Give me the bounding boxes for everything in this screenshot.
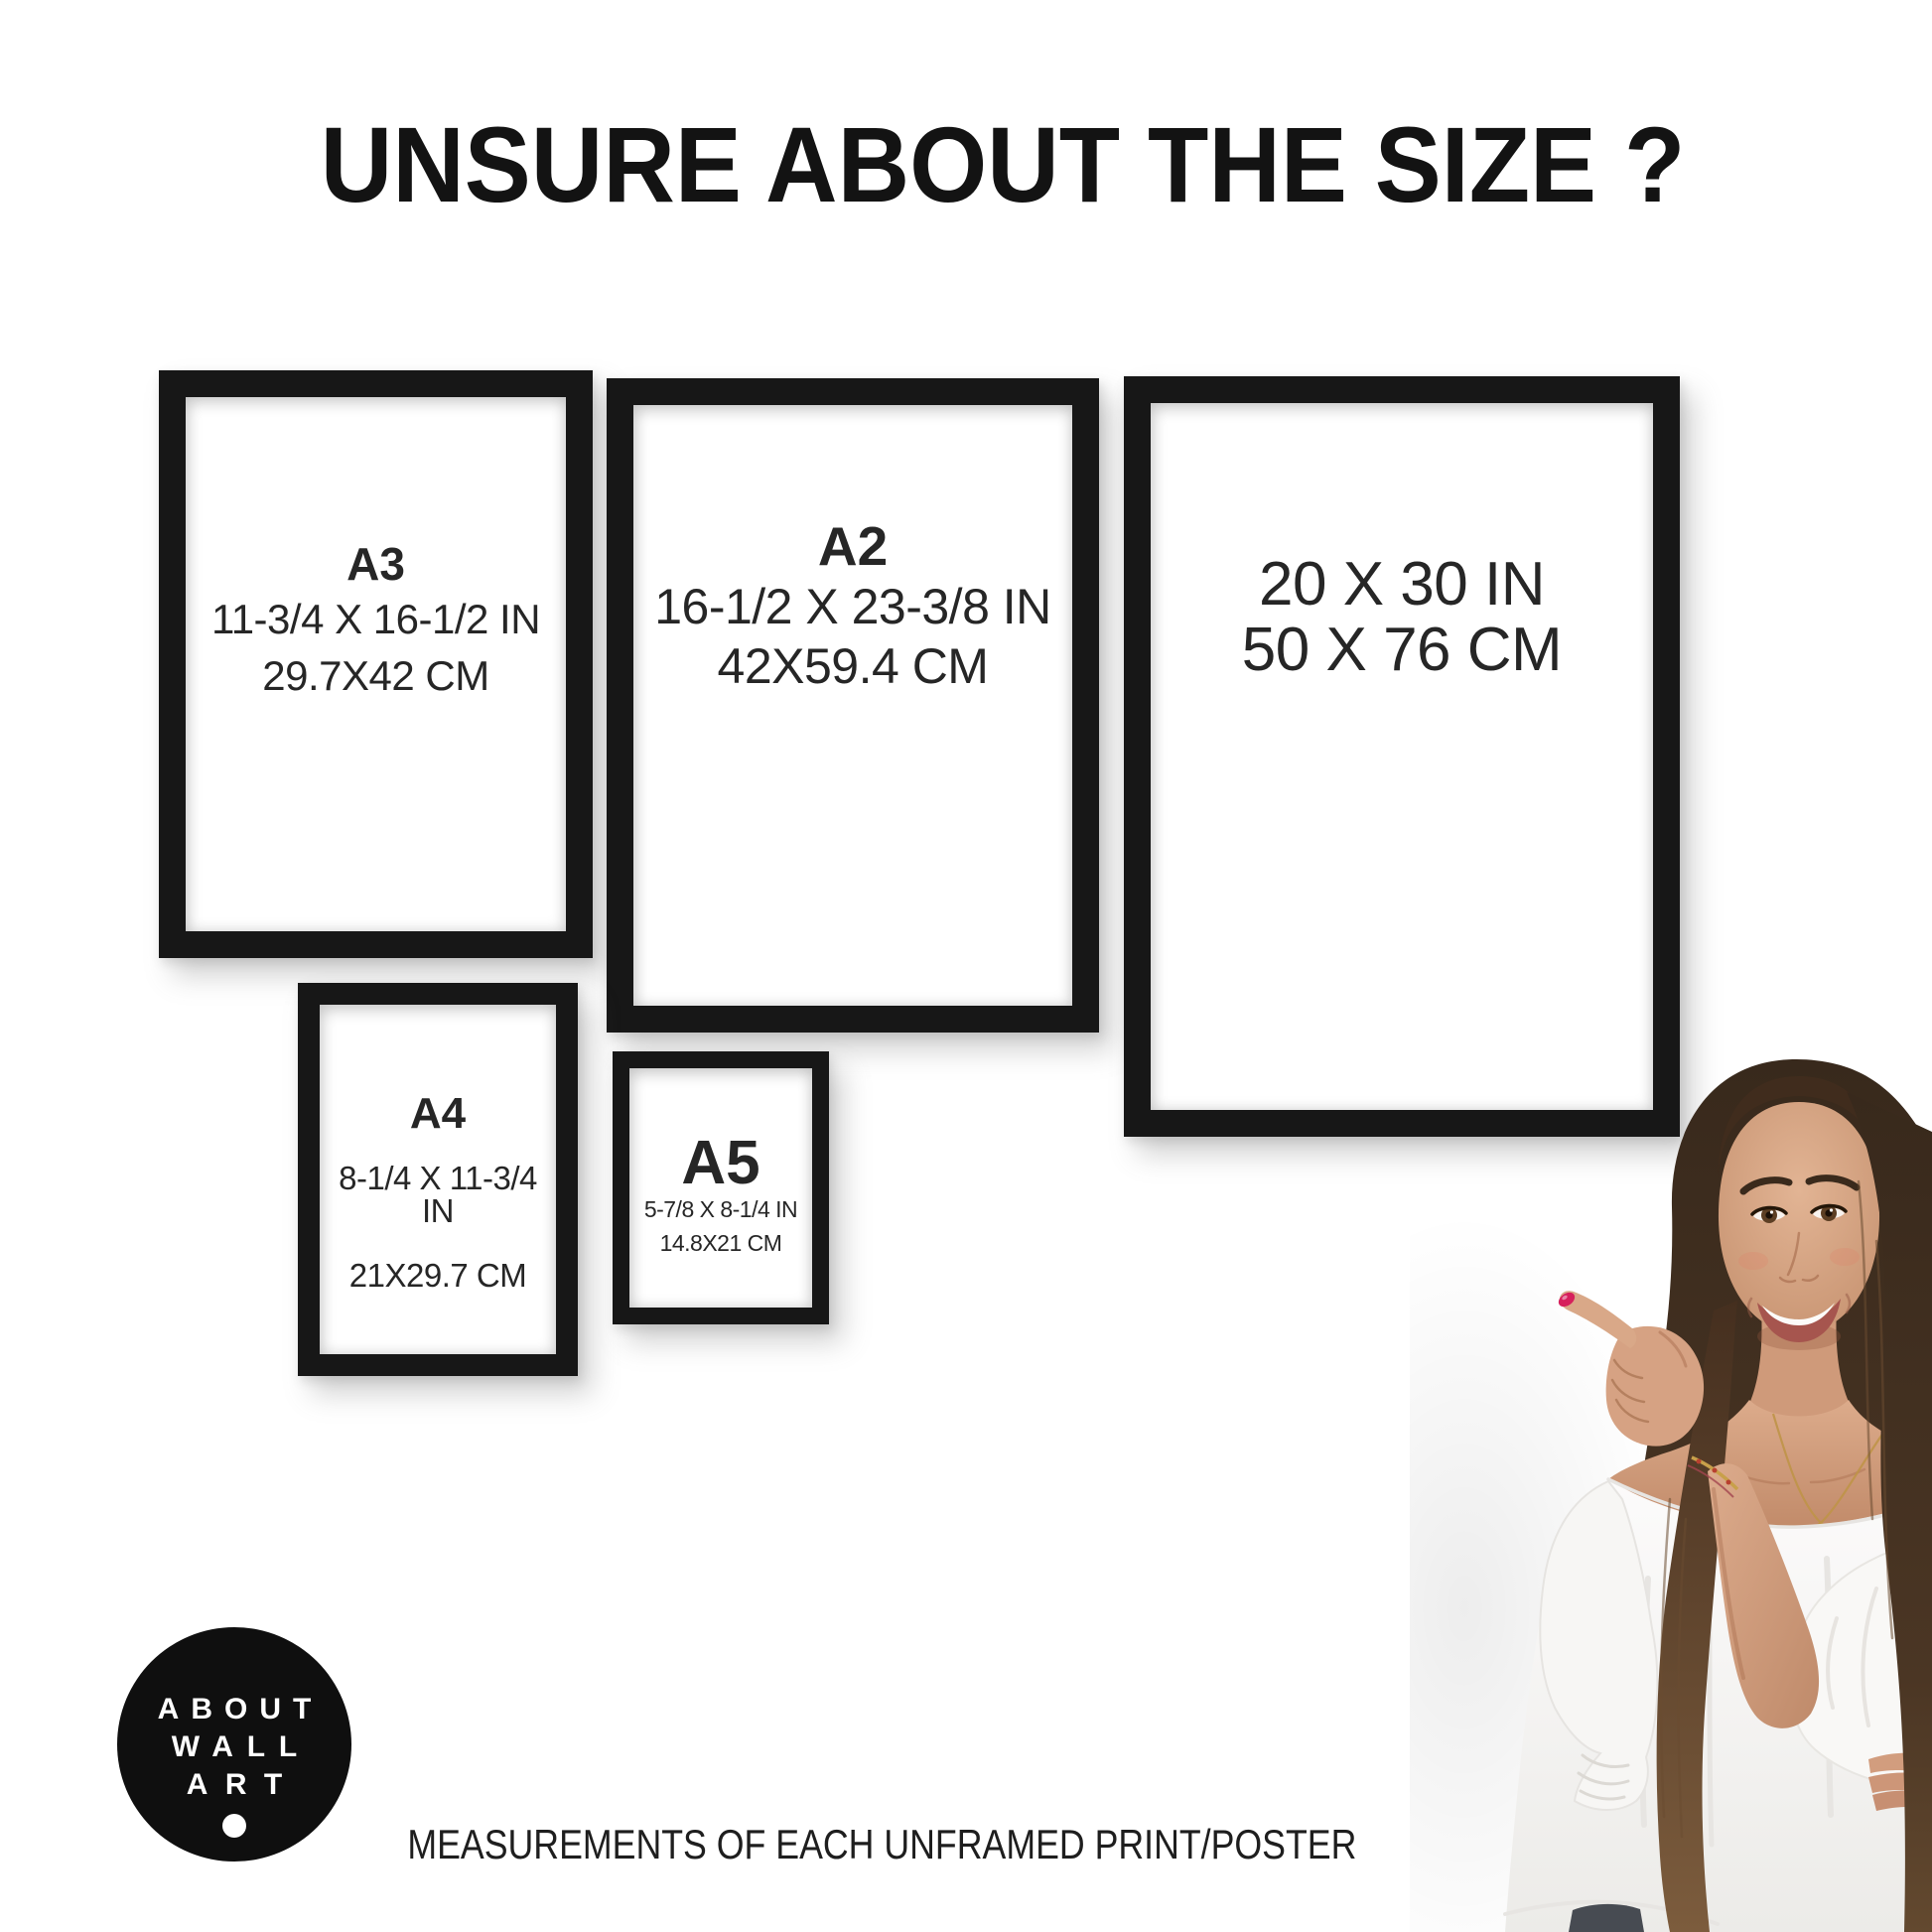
frame-a2-paper: A2 16-1/2 X 23-3/8 IN 42X59.4 CM xyxy=(633,405,1072,1006)
cheek-blush-left xyxy=(1738,1252,1768,1270)
size-inches-a3: 11-3/4 X 16-1/2 IN xyxy=(186,599,566,640)
frame-a3-paper: A3 11-3/4 X 16-1/2 IN 29.7X42 CM xyxy=(186,397,566,931)
size-inches-a4: 8-1/4 X 11-3/4 IN xyxy=(320,1162,556,1227)
woman-photo xyxy=(1410,983,1932,1932)
size-cm-a3: 29.7X42 CM xyxy=(186,655,566,697)
cheek-blush-right xyxy=(1830,1248,1860,1266)
frame-a4-paper: A4 8-1/4 X 11-3/4 IN 21X29.7 CM xyxy=(320,1005,556,1354)
size-cm-a5: 14.8X21 CM xyxy=(629,1232,812,1255)
size-guide-poster: UNSURE ABOUT THE SIZE ? A3 11-3/4 X 16-1… xyxy=(0,0,1932,1932)
size-cm-a2: 42X59.4 CM xyxy=(633,641,1072,691)
jeans xyxy=(1569,1904,1644,1932)
size-label-a2: A2 xyxy=(633,519,1072,574)
size-label-a4: A4 xyxy=(320,1092,556,1136)
face xyxy=(1719,1102,1879,1334)
size-label-a5: A5 xyxy=(629,1133,812,1194)
frame-a3-size-text: A3 11-3/4 X 16-1/2 IN 29.7X42 CM xyxy=(186,541,566,697)
logo-line-wall: WALL xyxy=(117,1728,365,1766)
frame-a4: A4 8-1/4 X 11-3/4 IN 21X29.7 CM xyxy=(298,983,578,1376)
frame-a5: A5 5-7/8 X 8-1/4 IN 14.8X21 CM xyxy=(613,1051,829,1324)
size-cm-20x30: 50 X 76 CM xyxy=(1151,620,1653,681)
logo-line-about: ABOUT xyxy=(117,1691,363,1728)
frame-a2-size-text: A2 16-1/2 X 23-3/8 IN 42X59.4 CM xyxy=(633,519,1072,691)
size-inches-a5: 5-7/8 X 8-1/4 IN xyxy=(629,1198,812,1221)
page-title-text: UNSURE ABOUT THE SIZE ? xyxy=(321,111,1686,218)
size-inches-a2: 16-1/2 X 23-3/8 IN xyxy=(633,582,1072,631)
size-cm-a4: 21X29.7 CM xyxy=(320,1259,556,1292)
frame-20x30-size-text: 20 X 30 IN 50 X 76 CM xyxy=(1151,554,1653,681)
logo-line-art: ART xyxy=(117,1766,368,1804)
frame-a5-paper: A5 5-7/8 X 8-1/4 IN 14.8X21 CM xyxy=(629,1068,812,1308)
page-title: UNSURE ABOUT THE SIZE ? xyxy=(0,111,1932,218)
size-label-a3: A3 xyxy=(186,541,566,587)
frame-a2: A2 16-1/2 X 23-3/8 IN 42X59.4 CM xyxy=(607,378,1099,1033)
frame-a3: A3 11-3/4 X 16-1/2 IN 29.7X42 CM xyxy=(159,370,593,958)
size-inches-20x30: 20 X 30 IN xyxy=(1151,554,1653,616)
frame-a4-size-text: A4 8-1/4 X 11-3/4 IN 21X29.7 CM xyxy=(320,1092,556,1292)
frame-a5-size-text: A5 5-7/8 X 8-1/4 IN 14.8X21 CM xyxy=(629,1133,812,1255)
footer-caption-text: MEASUREMENTS OF EACH UNFRAMED PRINT/POST… xyxy=(407,1824,1356,1865)
